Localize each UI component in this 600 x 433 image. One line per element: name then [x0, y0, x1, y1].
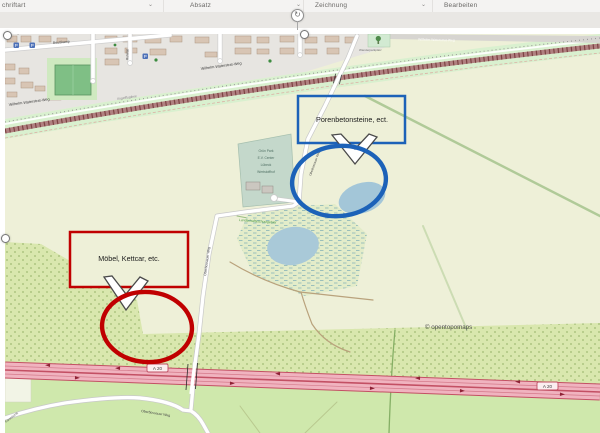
ribbon-group-label-schriftart: chriftart [2, 2, 25, 9]
facility-area: Grün Park E.V. Center Lübeck Wertstoffho… [238, 134, 295, 207]
svg-text:P: P [144, 54, 147, 59]
resize-handle-top-center[interactable] [300, 30, 309, 39]
svg-text:E.V. Center: E.V. Center [258, 156, 276, 160]
resize-handle-left-middle[interactable] [1, 234, 10, 243]
map-attribution: © opentopomaps [425, 324, 472, 331]
rotate-handle-stem [297, 21, 298, 30]
map-image[interactable]: P P P [5, 34, 600, 433]
svg-text:P: P [15, 43, 18, 48]
red-callout-text: Möbel, Kettcar, etc. [98, 254, 160, 263]
ribbon-group-label-absatz: Absatz [190, 2, 211, 9]
dialog-launcher-icon[interactable]: ⌄ [421, 1, 426, 8]
ribbon-group-label-bearbeiten: Bearbeiten [444, 2, 477, 9]
resize-handle-top-left[interactable] [3, 31, 12, 40]
street-label: Ruhetal [126, 49, 130, 60]
svg-text:Grün Park: Grün Park [258, 149, 273, 153]
ribbon-separator [432, 0, 433, 12]
svg-text:A 20: A 20 [543, 384, 553, 389]
svg-text:Wertstoffhof: Wertstoffhof [257, 170, 275, 174]
svg-text:Lübeck: Lübeck [261, 163, 272, 167]
blue-callout-text: Porenbetonsteine, ect. [316, 115, 388, 124]
svg-text:A 20: A 20 [153, 366, 163, 371]
word-window: chriftart ⌄ Absatz ⌄ Zeichnung ⌄ Bearbei… [0, 0, 600, 433]
dialog-launcher-icon[interactable]: ⌄ [148, 1, 153, 8]
poi-label: Wanderparkplatz [359, 48, 382, 52]
dialog-launcher-icon[interactable]: ⌄ [296, 1, 301, 8]
ribbon-separator [163, 0, 164, 12]
svg-text:P: P [31, 43, 34, 48]
ribbon-group-label-zeichnung: Zeichnung [315, 2, 347, 9]
ribbon-separator [303, 0, 304, 12]
